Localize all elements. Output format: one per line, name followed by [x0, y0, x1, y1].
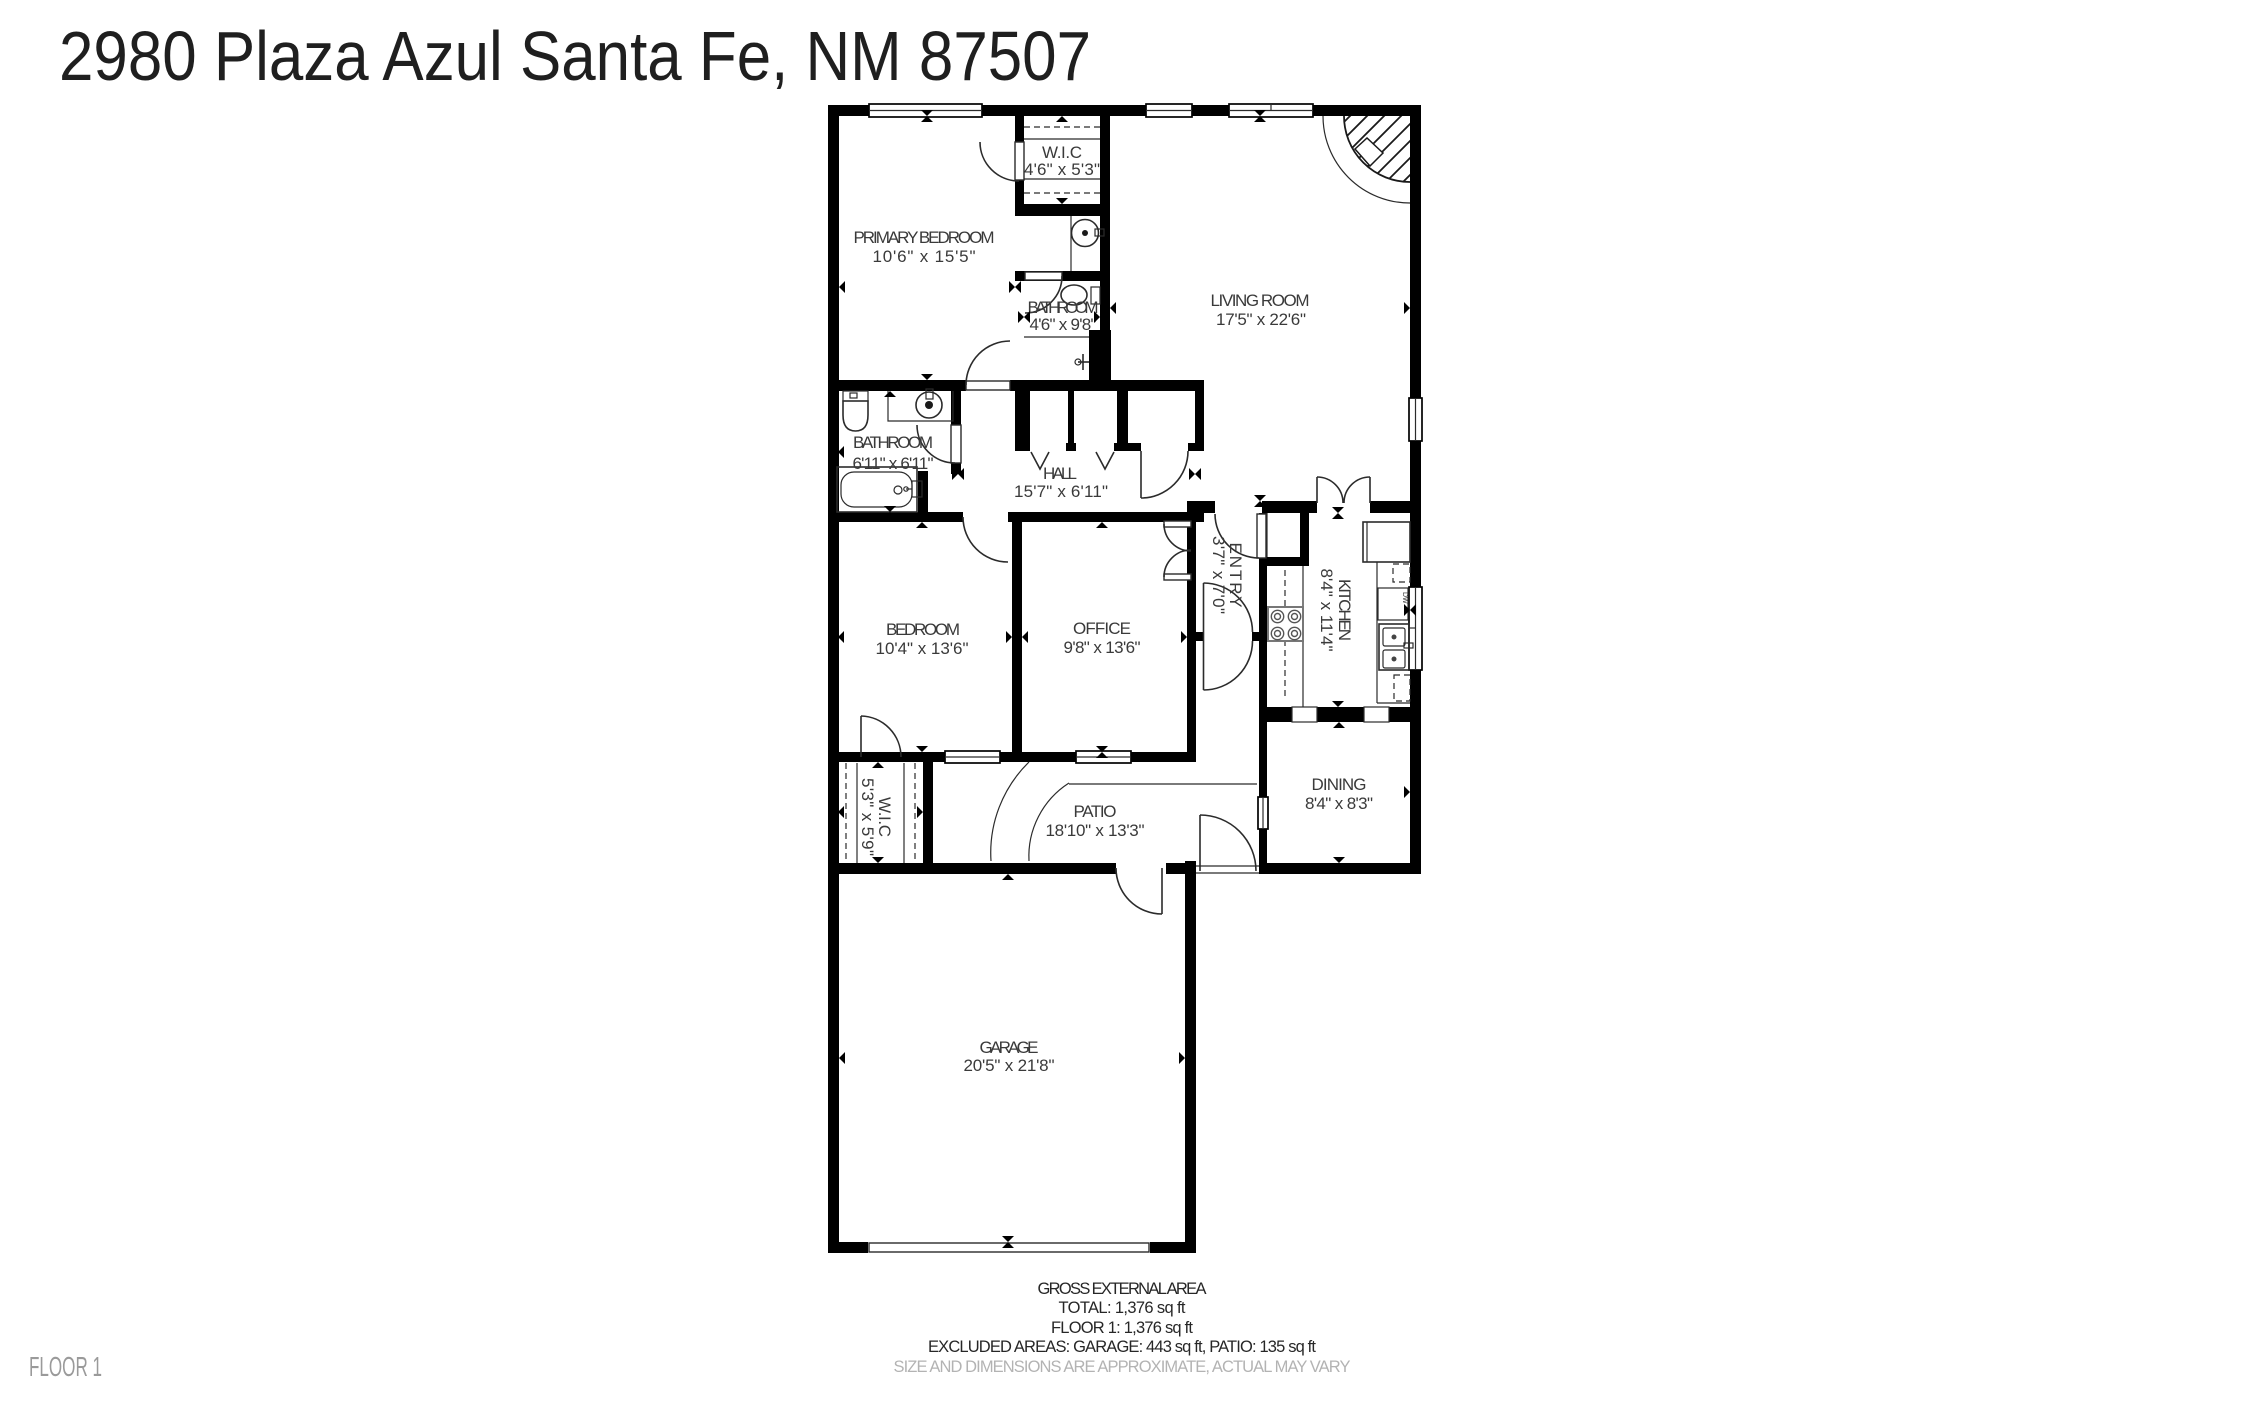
svg-text:10'4" x 13'6": 10'4" x 13'6" [876, 639, 969, 658]
svg-text:BATHROOM: BATHROOM [853, 433, 933, 452]
svg-text:FLOOR 1: 1,376 sq ft: FLOOR 1: 1,376 sq ft [1051, 1319, 1193, 1337]
svg-text:6'11" x 6'11": 6'11" x 6'11" [853, 454, 934, 473]
svg-text:FLOOR 1: FLOOR 1 [29, 1351, 102, 1382]
svg-text:4'6" x 5'3": 4'6" x 5'3" [1024, 160, 1100, 179]
svg-text:8'4" x 8'3": 8'4" x 8'3" [1305, 794, 1373, 813]
svg-text:BEDROOM: BEDROOM [886, 620, 960, 639]
svg-text:20'5" x 21'8": 20'5" x 21'8" [964, 1056, 1055, 1075]
svg-text:PATIO: PATIO [1074, 802, 1117, 821]
svg-text:8'4" x 11'4": 8'4" x 11'4" [1317, 569, 1336, 652]
svg-text:3'7" x 7'0": 3'7" x 7'0" [1209, 536, 1228, 614]
svg-text:KITCHEN: KITCHEN [1335, 579, 1354, 641]
svg-text:EXCLUDED AREAS: GARAGE: 443 sq: EXCLUDED AREAS: GARAGE: 443 sq ft, PATIO… [928, 1338, 1316, 1356]
svg-text:17'5" x 22'6": 17'5" x 22'6" [1216, 310, 1306, 329]
svg-text:5'3" x 5'9": 5'3" x 5'9" [858, 778, 877, 856]
svg-text:TOTAL: 1,376 sq ft: TOTAL: 1,376 sq ft [1059, 1299, 1186, 1317]
svg-text:18'10" x 13'3": 18'10" x 13'3" [1046, 821, 1145, 840]
svg-text:GARAGE: GARAGE [980, 1038, 1039, 1057]
svg-text:2980 Plaza Azul Santa Fe, NM 8: 2980 Plaza Azul Santa Fe, NM 87507 [59, 17, 1091, 95]
svg-text:10'6" x 15'5": 10'6" x 15'5" [873, 247, 976, 266]
svg-text:15'7" x 6'11": 15'7" x 6'11" [1014, 482, 1108, 501]
svg-text:HALL: HALL [1043, 464, 1077, 483]
svg-text:OFFICE: OFFICE [1073, 619, 1131, 638]
svg-text:GROSS EXTERNAL AREA: GROSS EXTERNAL AREA [1038, 1280, 1207, 1298]
svg-text:9'8" x 13'6": 9'8" x 13'6" [1064, 638, 1141, 657]
svg-text:SIZE AND DIMENSIONS ARE APPROX: SIZE AND DIMENSIONS ARE APPROXIMATE, ACT… [894, 1358, 1351, 1376]
svg-text:DINING: DINING [1312, 775, 1367, 794]
svg-text:LIVING ROOM: LIVING ROOM [1211, 291, 1310, 310]
svg-text:DW: DW [1401, 592, 1408, 604]
svg-text:4'6" x 9'8": 4'6" x 9'8" [1030, 315, 1097, 334]
svg-text:PRIMARY BEDROOM: PRIMARY BEDROOM [854, 228, 995, 247]
